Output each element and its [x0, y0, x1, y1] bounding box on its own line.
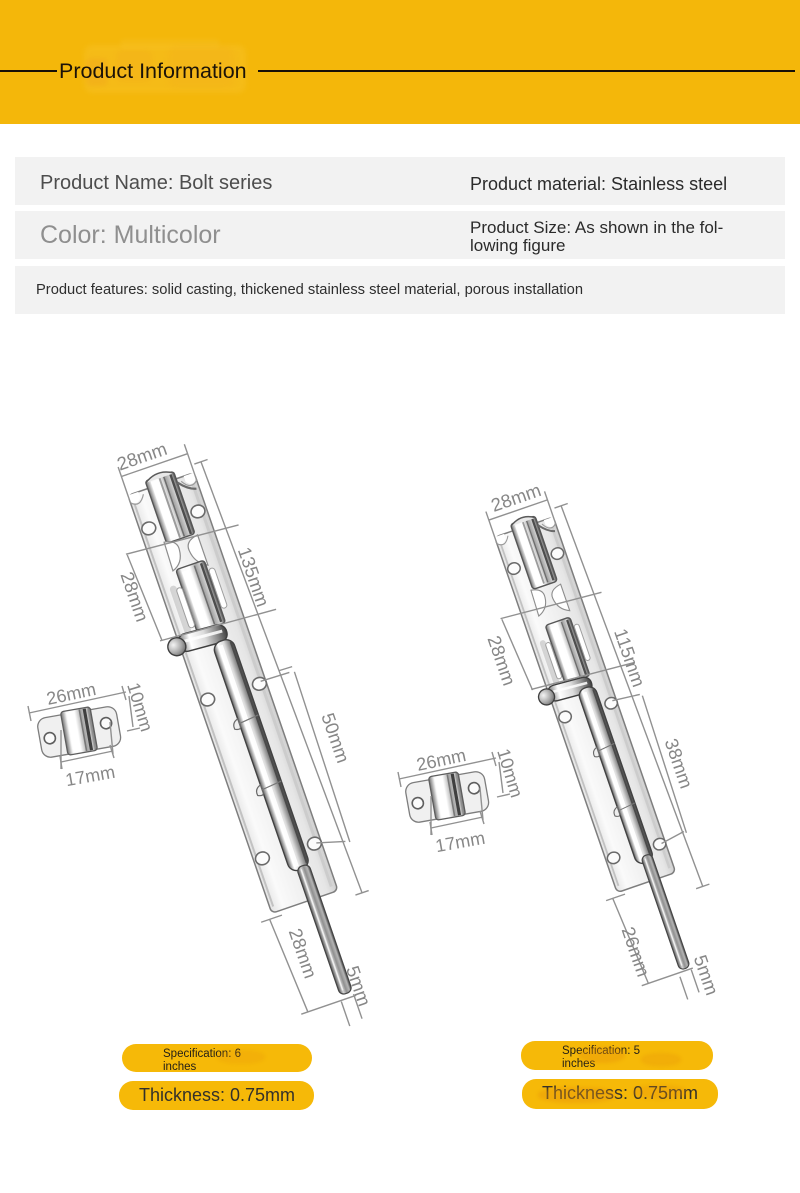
svg-text:115mm: 115mm: [610, 626, 649, 690]
svg-text:10mm: 10mm: [493, 746, 527, 800]
svg-text:28mm: 28mm: [116, 569, 153, 624]
svg-text:17mm: 17mm: [64, 762, 117, 790]
svg-text:10mm: 10mm: [123, 680, 157, 734]
svg-text:26mm: 26mm: [618, 924, 655, 979]
svg-text:5mm: 5mm: [690, 952, 723, 998]
svg-text:28mm: 28mm: [285, 926, 322, 981]
svg-text:28mm: 28mm: [483, 633, 520, 688]
svg-text:17mm: 17mm: [434, 828, 487, 856]
svg-text:135mm: 135mm: [234, 544, 274, 609]
svg-text:38mm: 38mm: [661, 736, 698, 791]
